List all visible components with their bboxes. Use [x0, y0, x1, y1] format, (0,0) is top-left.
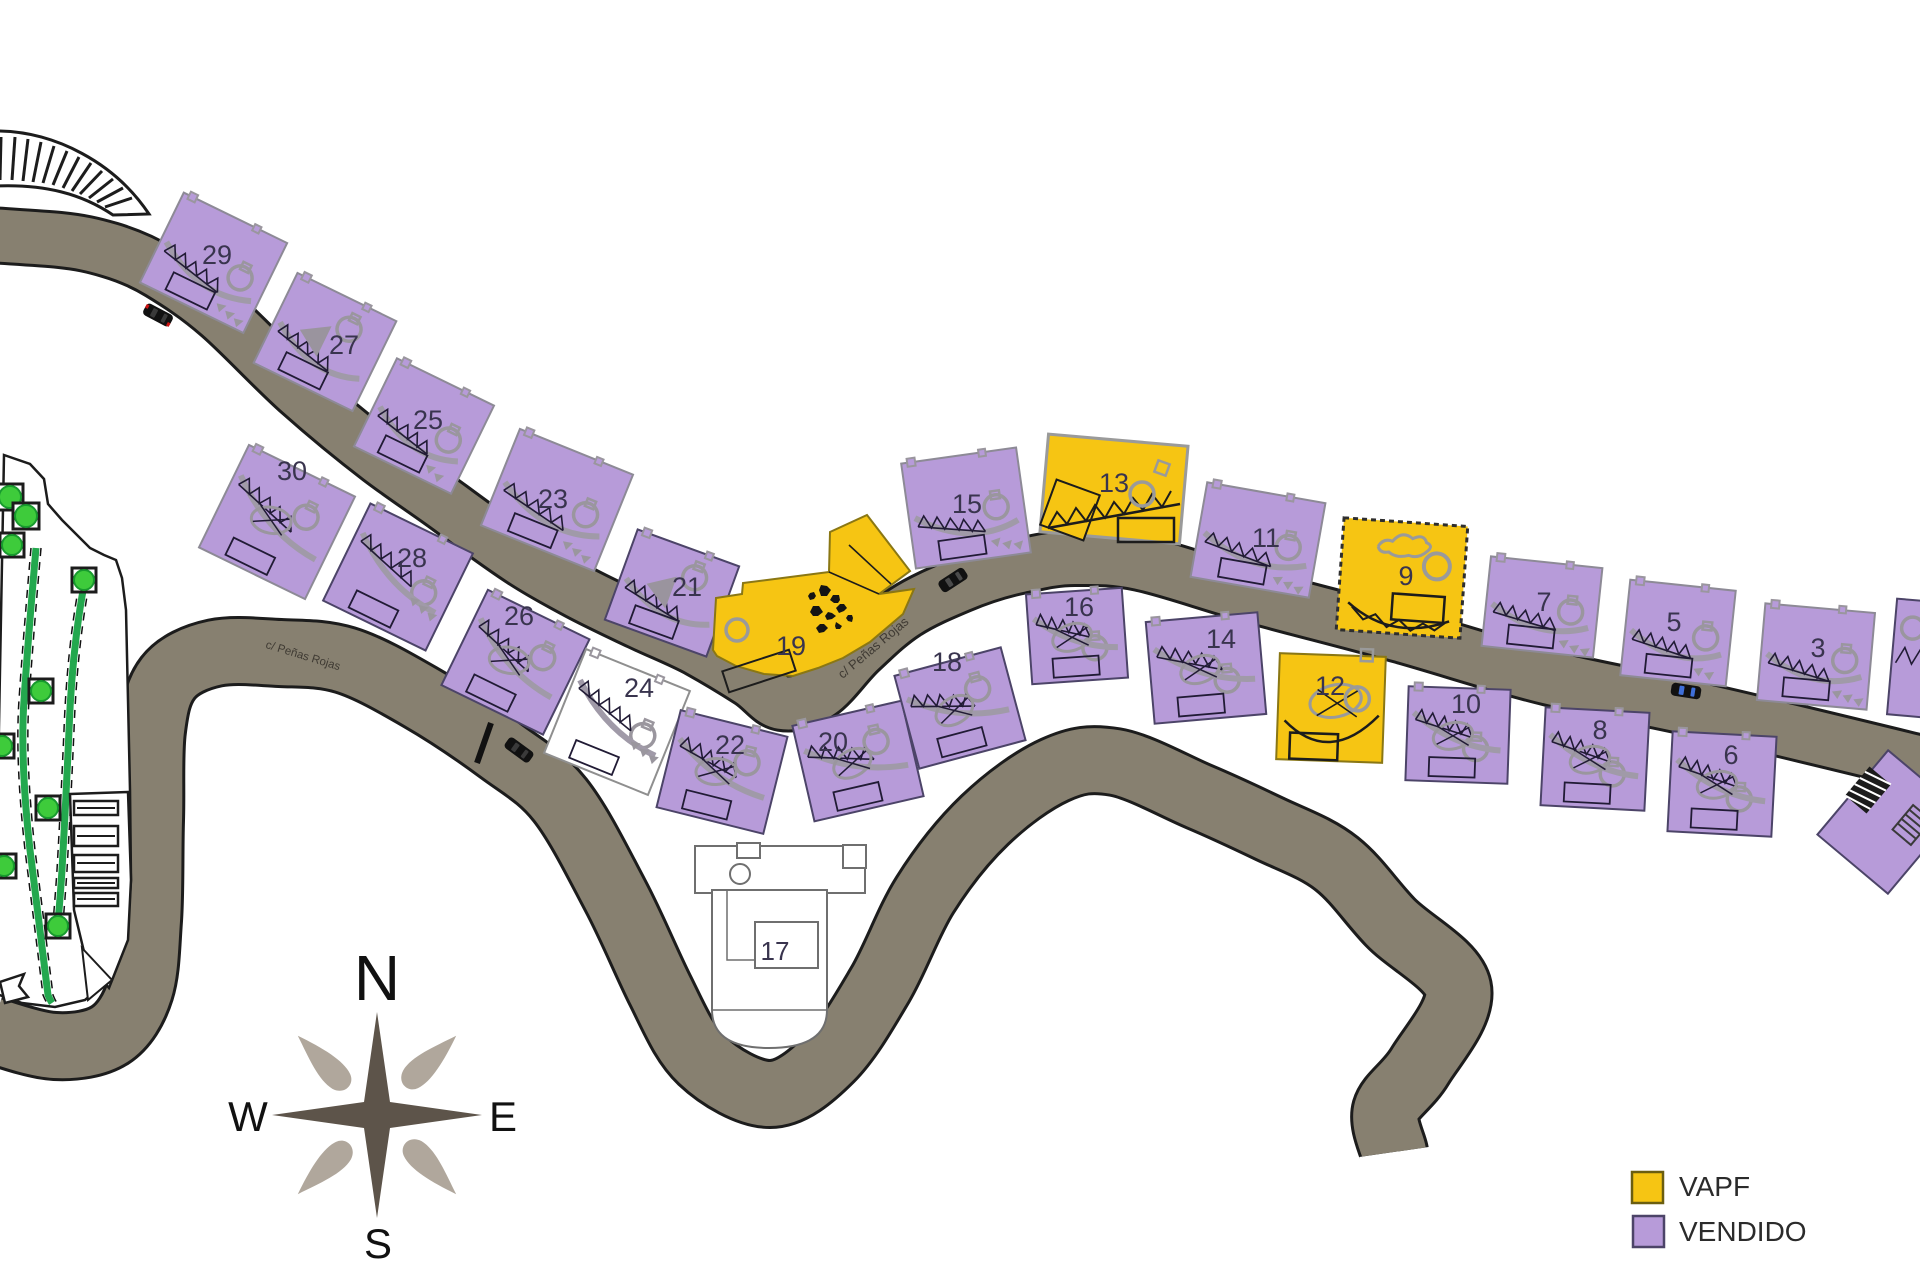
svg-text:15: 15: [952, 489, 982, 519]
svg-text:VAPF: VAPF: [1679, 1171, 1750, 1202]
svg-text:16: 16: [1064, 592, 1094, 622]
svg-text:7: 7: [1536, 587, 1551, 617]
svg-text:13: 13: [1099, 468, 1129, 498]
svg-text:S: S: [364, 1220, 392, 1267]
svg-text:9: 9: [1398, 561, 1413, 591]
svg-text:26: 26: [504, 601, 534, 631]
svg-text:22: 22: [715, 730, 745, 760]
svg-text:19: 19: [776, 631, 806, 661]
svg-text:12: 12: [1315, 671, 1345, 701]
svg-text:E: E: [489, 1093, 517, 1140]
svg-text:25: 25: [413, 405, 443, 435]
svg-text:8: 8: [1592, 715, 1607, 745]
svg-text:VENDIDO: VENDIDO: [1679, 1216, 1807, 1247]
svg-text:14: 14: [1206, 624, 1236, 654]
svg-text:30: 30: [277, 456, 307, 486]
svg-text:N: N: [354, 942, 400, 1014]
svg-text:21: 21: [672, 572, 702, 602]
svg-text:24: 24: [624, 673, 654, 703]
svg-text:6: 6: [1723, 740, 1738, 770]
svg-text:29: 29: [202, 240, 232, 270]
svg-text:17: 17: [761, 936, 790, 966]
svg-text:20: 20: [818, 727, 848, 757]
svg-text:11: 11: [1252, 523, 1280, 553]
svg-text:W: W: [228, 1093, 268, 1140]
svg-text:10: 10: [1451, 689, 1481, 719]
svg-text:27: 27: [329, 330, 359, 360]
svg-text:23: 23: [538, 484, 568, 514]
svg-text:18: 18: [932, 647, 962, 677]
svg-text:28: 28: [397, 543, 427, 573]
svg-text:3: 3: [1810, 633, 1825, 663]
svg-text:5: 5: [1666, 607, 1681, 637]
